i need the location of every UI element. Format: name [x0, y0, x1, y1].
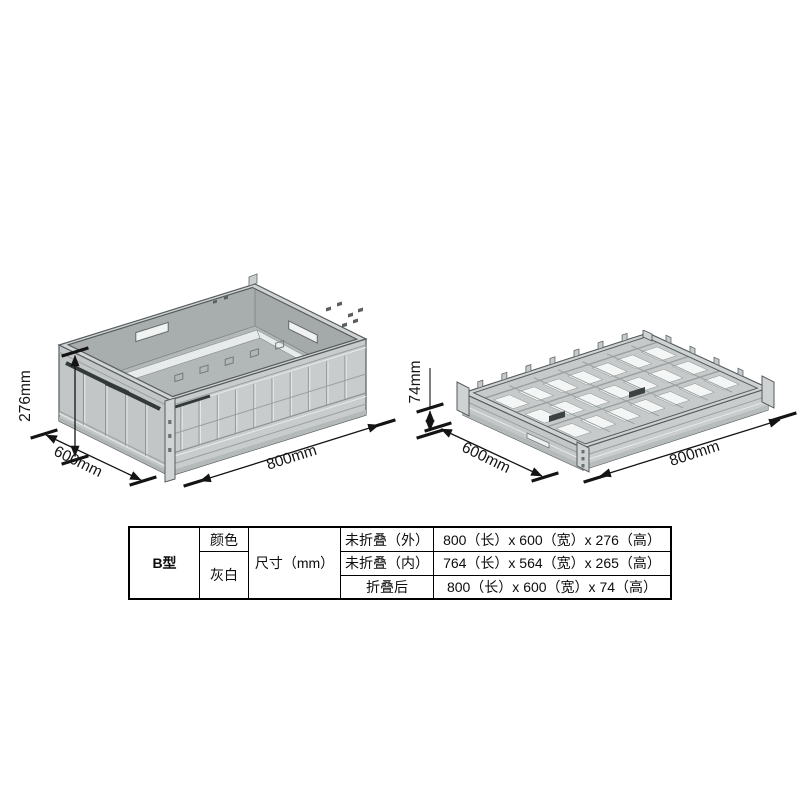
- row-dims-unfolded-outer: 800（长）x 600（宽）x 276（高）: [433, 528, 670, 551]
- spec-table: B型 颜色 灰白 尺寸（mm） 未折叠（外） 800（长）x 600（宽）x 2…: [128, 526, 672, 600]
- dim-label-800mm: 800mm: [667, 438, 721, 470]
- unfolded-crate-drawing: 276mm 600mm 800mm: [10, 268, 400, 495]
- dim-label-800mm: 800mm: [264, 442, 318, 474]
- color-value-cell: 灰白: [199, 551, 248, 598]
- color-label-cell: 颜色: [199, 528, 248, 551]
- row-dims-folded: 800（长）x 600（宽）x 74（高）: [433, 575, 670, 598]
- corner-post: [165, 398, 175, 482]
- dim-label-74mm: 74mm: [407, 360, 424, 403]
- dim-label-276mm: 276mm: [17, 370, 34, 422]
- spec-sheet: 276mm 600mm 800mm: [0, 0, 800, 800]
- dim-label-600mm: 600mm: [459, 439, 513, 477]
- row-state-unfolded-outer: 未折叠（外）: [340, 528, 433, 551]
- size-unit-cell: 尺寸（mm）: [248, 528, 340, 598]
- folded-crate: [457, 330, 774, 472]
- unfolded-crate: [59, 274, 366, 482]
- corner-post: [457, 382, 469, 416]
- row-state-unfolded-inner: 未折叠（内）: [340, 551, 433, 574]
- corner-post: [762, 376, 774, 408]
- folded-crate-drawing: 74mm 600mm 800mm: [405, 330, 800, 490]
- row-state-folded: 折叠后: [340, 575, 433, 598]
- dim-label-600mm: 600mm: [51, 443, 105, 481]
- row-dims-unfolded-inner: 764（长）x 564（宽）x 265（高）: [433, 551, 670, 574]
- model-cell: B型: [130, 528, 199, 598]
